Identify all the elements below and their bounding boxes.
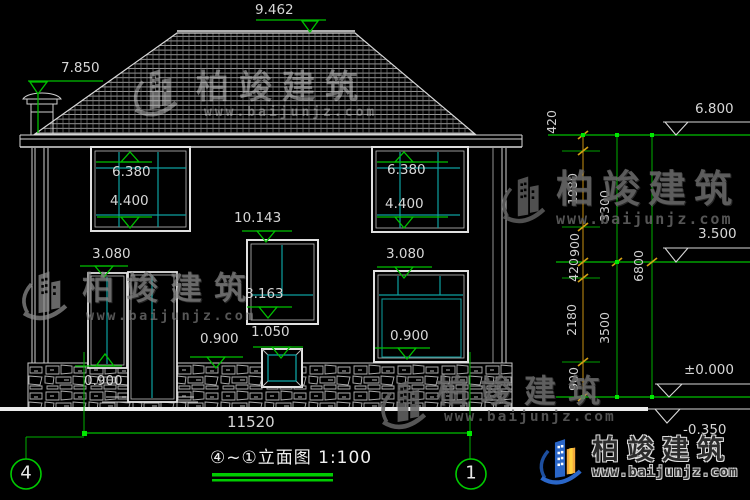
upper-left-window — [91, 147, 190, 231]
watermark-brand: 柏竣建筑 — [196, 70, 368, 103]
upper-right-window — [372, 147, 468, 232]
dim-chain-420-top: 420 — [546, 110, 559, 134]
dim-right-eave-level: 6.800 — [695, 103, 734, 117]
dim-floor-3500: 3500 — [599, 312, 612, 344]
view-title: ④~①立面图 1:100 — [210, 450, 372, 467]
brand-logo-icon — [376, 372, 430, 436]
dim-entry-door-top: 3.080 — [92, 248, 131, 262]
dim-ur-window-top: 6.380 — [387, 164, 426, 178]
axis-bubble-1-label: 1 — [465, 463, 476, 484]
dim-left-eave-level: 7.850 — [61, 62, 100, 76]
brand-logo-color-icon — [533, 434, 587, 488]
dim-lr-window-sill: 0.900 — [390, 330, 429, 344]
watermark-url: www.baijunjz.com — [204, 106, 377, 119]
axis-bubble-4-label: 4 — [20, 463, 31, 484]
dim-chain-2180: 2180 — [566, 304, 579, 336]
brand-logo-icon — [126, 64, 184, 120]
dim-plinth-sill: 0.900 — [200, 333, 239, 347]
dim-lr-window-top: 3.080 — [386, 248, 425, 262]
plinth-window — [262, 349, 302, 387]
title-underline — [212, 473, 333, 482]
dim-ur-window-bottom: 4.400 — [385, 198, 424, 212]
dim-chain-900-upper: 900 — [569, 233, 582, 257]
elevation-drawing-canvas: 9.462 7.850 6.380 4.400 6.380 4.400 10.1… — [0, 0, 750, 500]
watermark-brand: 柏竣建筑 — [556, 170, 740, 208]
dim-second-floor-level: 3.500 — [698, 228, 737, 242]
dim-entry-door-sill: 0.900 — [84, 375, 123, 389]
watermark-url: www.baijunjz.com — [556, 212, 733, 227]
brand-logo-icon — [497, 168, 549, 230]
dim-ground-level: ±0.000 — [684, 364, 734, 378]
dim-ul-window-top: 6.380 — [112, 166, 151, 180]
watermark-url: www.baijunjz.com — [444, 410, 616, 425]
dim-plinth-window-top: 1.050 — [251, 326, 290, 340]
dim-stair-window-top: 10.143 — [234, 212, 281, 226]
watermark-brand: 柏竣建筑 — [82, 272, 258, 304]
dim-ridge-level: 9.462 — [255, 4, 294, 18]
dim-chain-420-mid: 420 — [568, 258, 581, 282]
dim-overall-width: 11520 — [227, 415, 275, 430]
dim-total-6800: 6800 — [633, 250, 646, 282]
dim-ul-window-bottom: 4.400 — [110, 195, 149, 209]
watermark-url: www.baijunjz.com — [592, 466, 738, 480]
watermark-brand: 柏竣建筑 — [436, 375, 612, 407]
watermark-brand: 柏竣建筑 — [592, 437, 732, 464]
watermark-url: www.baijunjz.com — [86, 310, 256, 324]
brand-logo-icon — [14, 266, 74, 324]
